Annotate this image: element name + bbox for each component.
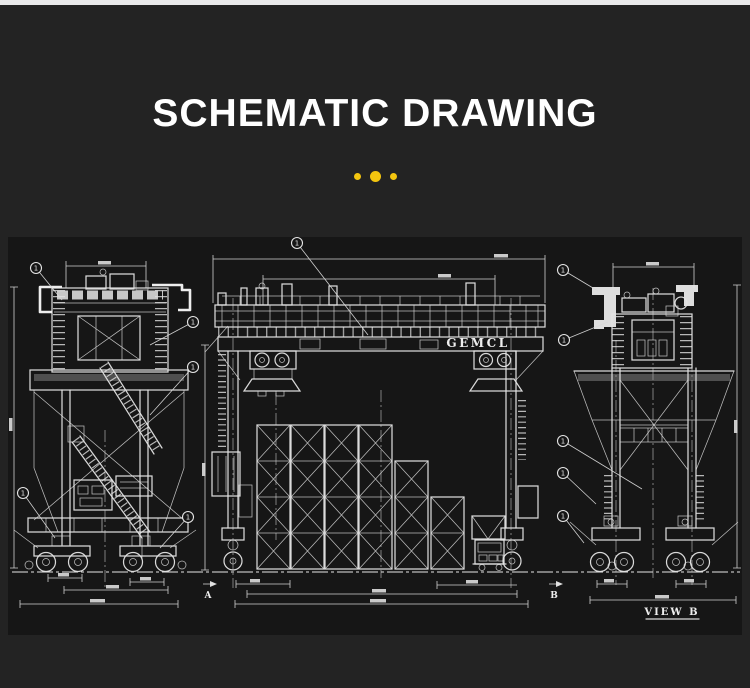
svg-text:1: 1 <box>21 490 25 498</box>
svg-text:1: 1 <box>186 514 190 522</box>
girder-brand-text: GEMCL <box>446 336 509 350</box>
svg-text:1: 1 <box>561 513 565 521</box>
marker-a-label: A <box>204 591 213 601</box>
svg-text:1: 1 <box>191 319 195 327</box>
page: SCHEMATIC DRAWING <box>0 0 750 688</box>
svg-text:1: 1 <box>295 240 299 248</box>
svg-text:1: 1 <box>562 337 566 345</box>
svg-text:1: 1 <box>34 265 38 273</box>
schematic-drawing: 1 1 1 1 1 <box>0 0 750 688</box>
view-b-label: VIEW B <box>643 607 699 618</box>
svg-text:1: 1 <box>561 267 565 275</box>
svg-text:1: 1 <box>191 364 195 372</box>
svg-text:1: 1 <box>561 470 565 478</box>
svg-text:1: 1 <box>561 438 565 446</box>
view-b-caption: VIEW B <box>643 607 699 619</box>
marker-b-label: B <box>550 591 558 601</box>
